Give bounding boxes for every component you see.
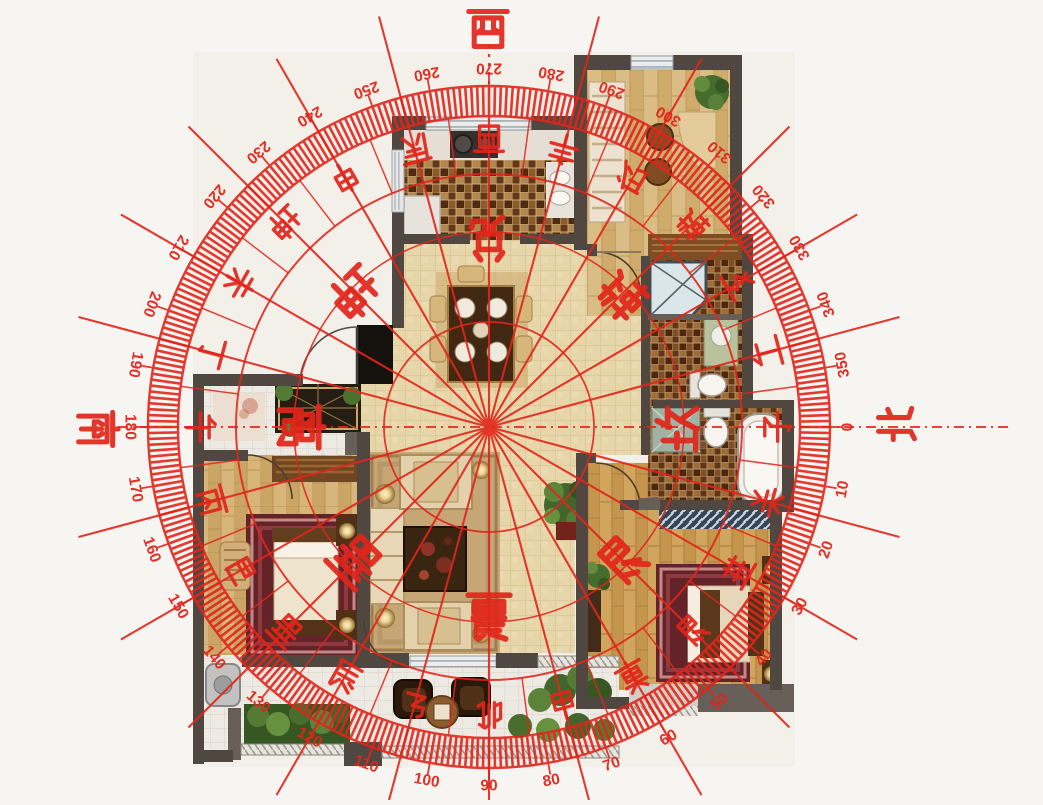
- svg-text:90: 90: [480, 778, 497, 795]
- svg-text:80: 80: [541, 771, 561, 791]
- svg-text:0: 0: [840, 423, 857, 432]
- svg-text:180: 180: [122, 414, 139, 440]
- svg-text:10: 10: [833, 479, 853, 499]
- svg-text:270: 270: [476, 60, 502, 77]
